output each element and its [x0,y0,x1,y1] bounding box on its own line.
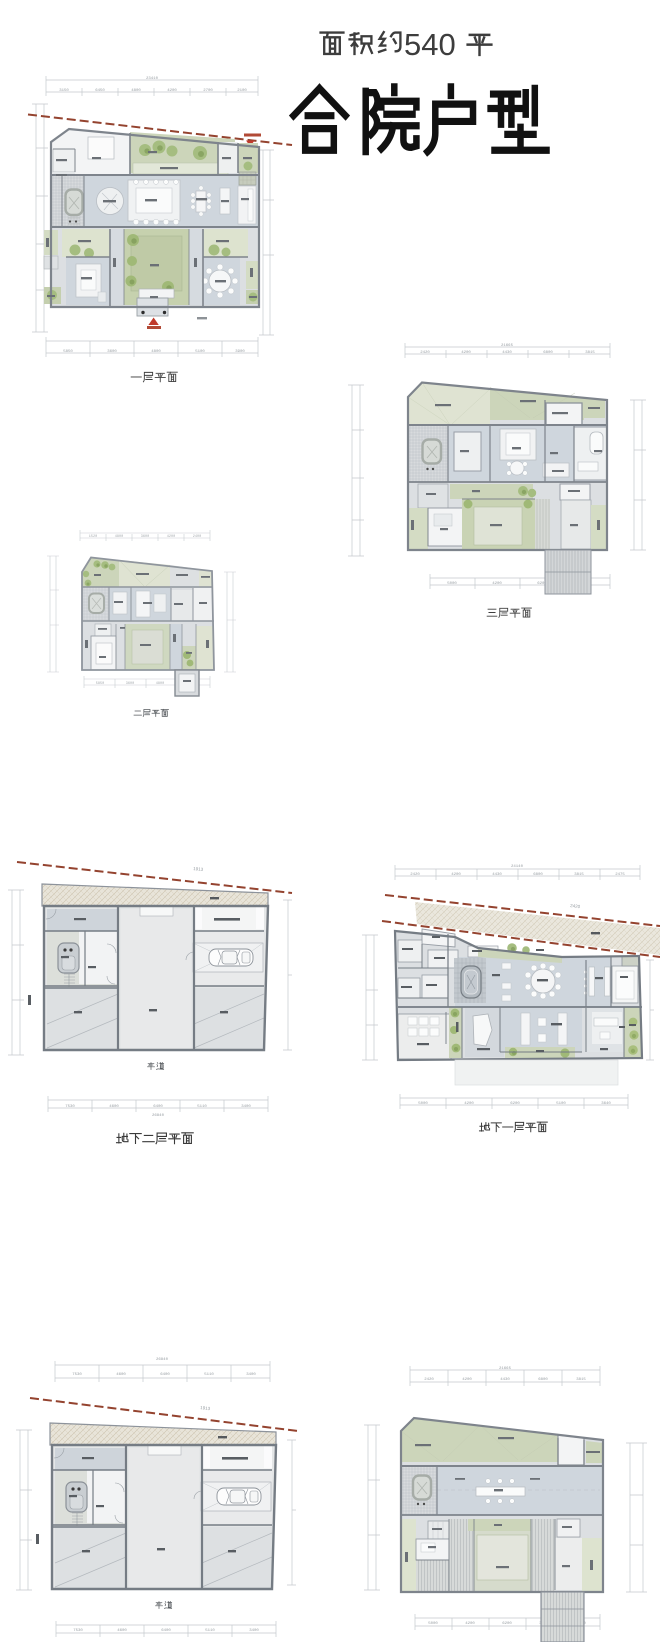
svg-text:3400: 3400 [246,1373,256,1377]
svg-text:3815: 3815 [576,1378,586,1382]
svg-text:5000: 5000 [447,582,457,586]
svg-text:5100: 5100 [195,350,205,354]
svg-text:7530: 7530 [72,1373,82,1377]
svg-text:2475: 2475 [615,873,625,877]
svg-text:7530: 7530 [65,1105,75,1109]
svg-text:4800: 4800 [115,535,123,539]
svg-text:6400: 6400 [161,1629,171,1633]
svg-text:6400: 6400 [153,1105,163,1109]
svg-text:6200: 6200 [502,1622,512,1626]
svg-text:2400: 2400 [193,535,201,539]
svg-text:5100: 5100 [556,1102,566,1106]
svg-text:21665: 21665 [499,1367,512,1371]
svg-text:3815: 3815 [585,351,595,355]
svg-text:5110: 5110 [204,1373,214,1377]
svg-text:2420: 2420 [424,1378,434,1382]
svg-text:6800: 6800 [538,1378,548,1382]
svg-text:6450: 6450 [95,89,105,93]
svg-text:4800: 4800 [131,89,141,93]
svg-text:4200: 4200 [451,873,461,877]
svg-text:24140: 24140 [511,865,524,869]
svg-text:5110: 5110 [197,1105,207,1109]
svg-text:23410: 23410 [146,77,159,81]
svg-text:4200: 4200 [167,89,177,93]
svg-text:5850: 5850 [96,682,104,686]
svg-text:6800: 6800 [533,873,543,877]
svg-text:4430: 4430 [500,1378,510,1382]
svg-text:3400: 3400 [241,1105,251,1109]
svg-text:6200: 6200 [510,1102,520,1106]
svg-text:5000: 5000 [428,1622,438,1626]
svg-text:4200: 4200 [492,582,502,586]
svg-text:3600: 3600 [141,535,149,539]
svg-text:7530: 7530 [73,1629,83,1633]
svg-text:5000: 5000 [418,1102,428,1106]
svg-text:1520: 1520 [89,535,97,539]
svg-text:540: 540 [404,27,456,62]
svg-text:3600: 3600 [126,682,134,686]
svg-text:3600: 3600 [107,350,117,354]
svg-text:21665: 21665 [501,344,514,348]
svg-text:4600: 4600 [116,1373,126,1377]
svg-text:4200: 4200 [465,1622,475,1626]
svg-text:2420: 2420 [420,351,430,355]
svg-text:2100: 2100 [237,89,247,93]
svg-text:4430: 4430 [492,873,502,877]
svg-text:2700: 2700 [203,89,213,93]
svg-text:4430: 4430 [502,351,512,355]
svg-text:4200: 4200 [461,351,471,355]
svg-text:5110: 5110 [205,1629,215,1633]
svg-text:6800: 6800 [543,351,553,355]
svg-text:3815: 3815 [574,873,584,877]
svg-text:3400: 3400 [249,1629,259,1633]
svg-text:6400: 6400 [160,1373,170,1377]
svg-text:4800: 4800 [151,350,161,354]
svg-text:5850: 5850 [63,350,73,354]
svg-text:4200: 4200 [464,1102,474,1106]
svg-text:26840: 26840 [156,1358,169,1362]
svg-text:3150: 3150 [59,89,69,93]
svg-text:26840: 26840 [152,1114,165,1118]
svg-text:4600: 4600 [117,1629,127,1633]
svg-text:4200: 4200 [462,1378,472,1382]
svg-text:3640: 3640 [601,1102,611,1106]
svg-text:4200: 4200 [167,535,175,539]
svg-text:4800: 4800 [156,682,164,686]
svg-text:3900: 3900 [235,350,245,354]
svg-text:4600: 4600 [109,1105,119,1109]
svg-text:2420: 2420 [410,873,420,877]
